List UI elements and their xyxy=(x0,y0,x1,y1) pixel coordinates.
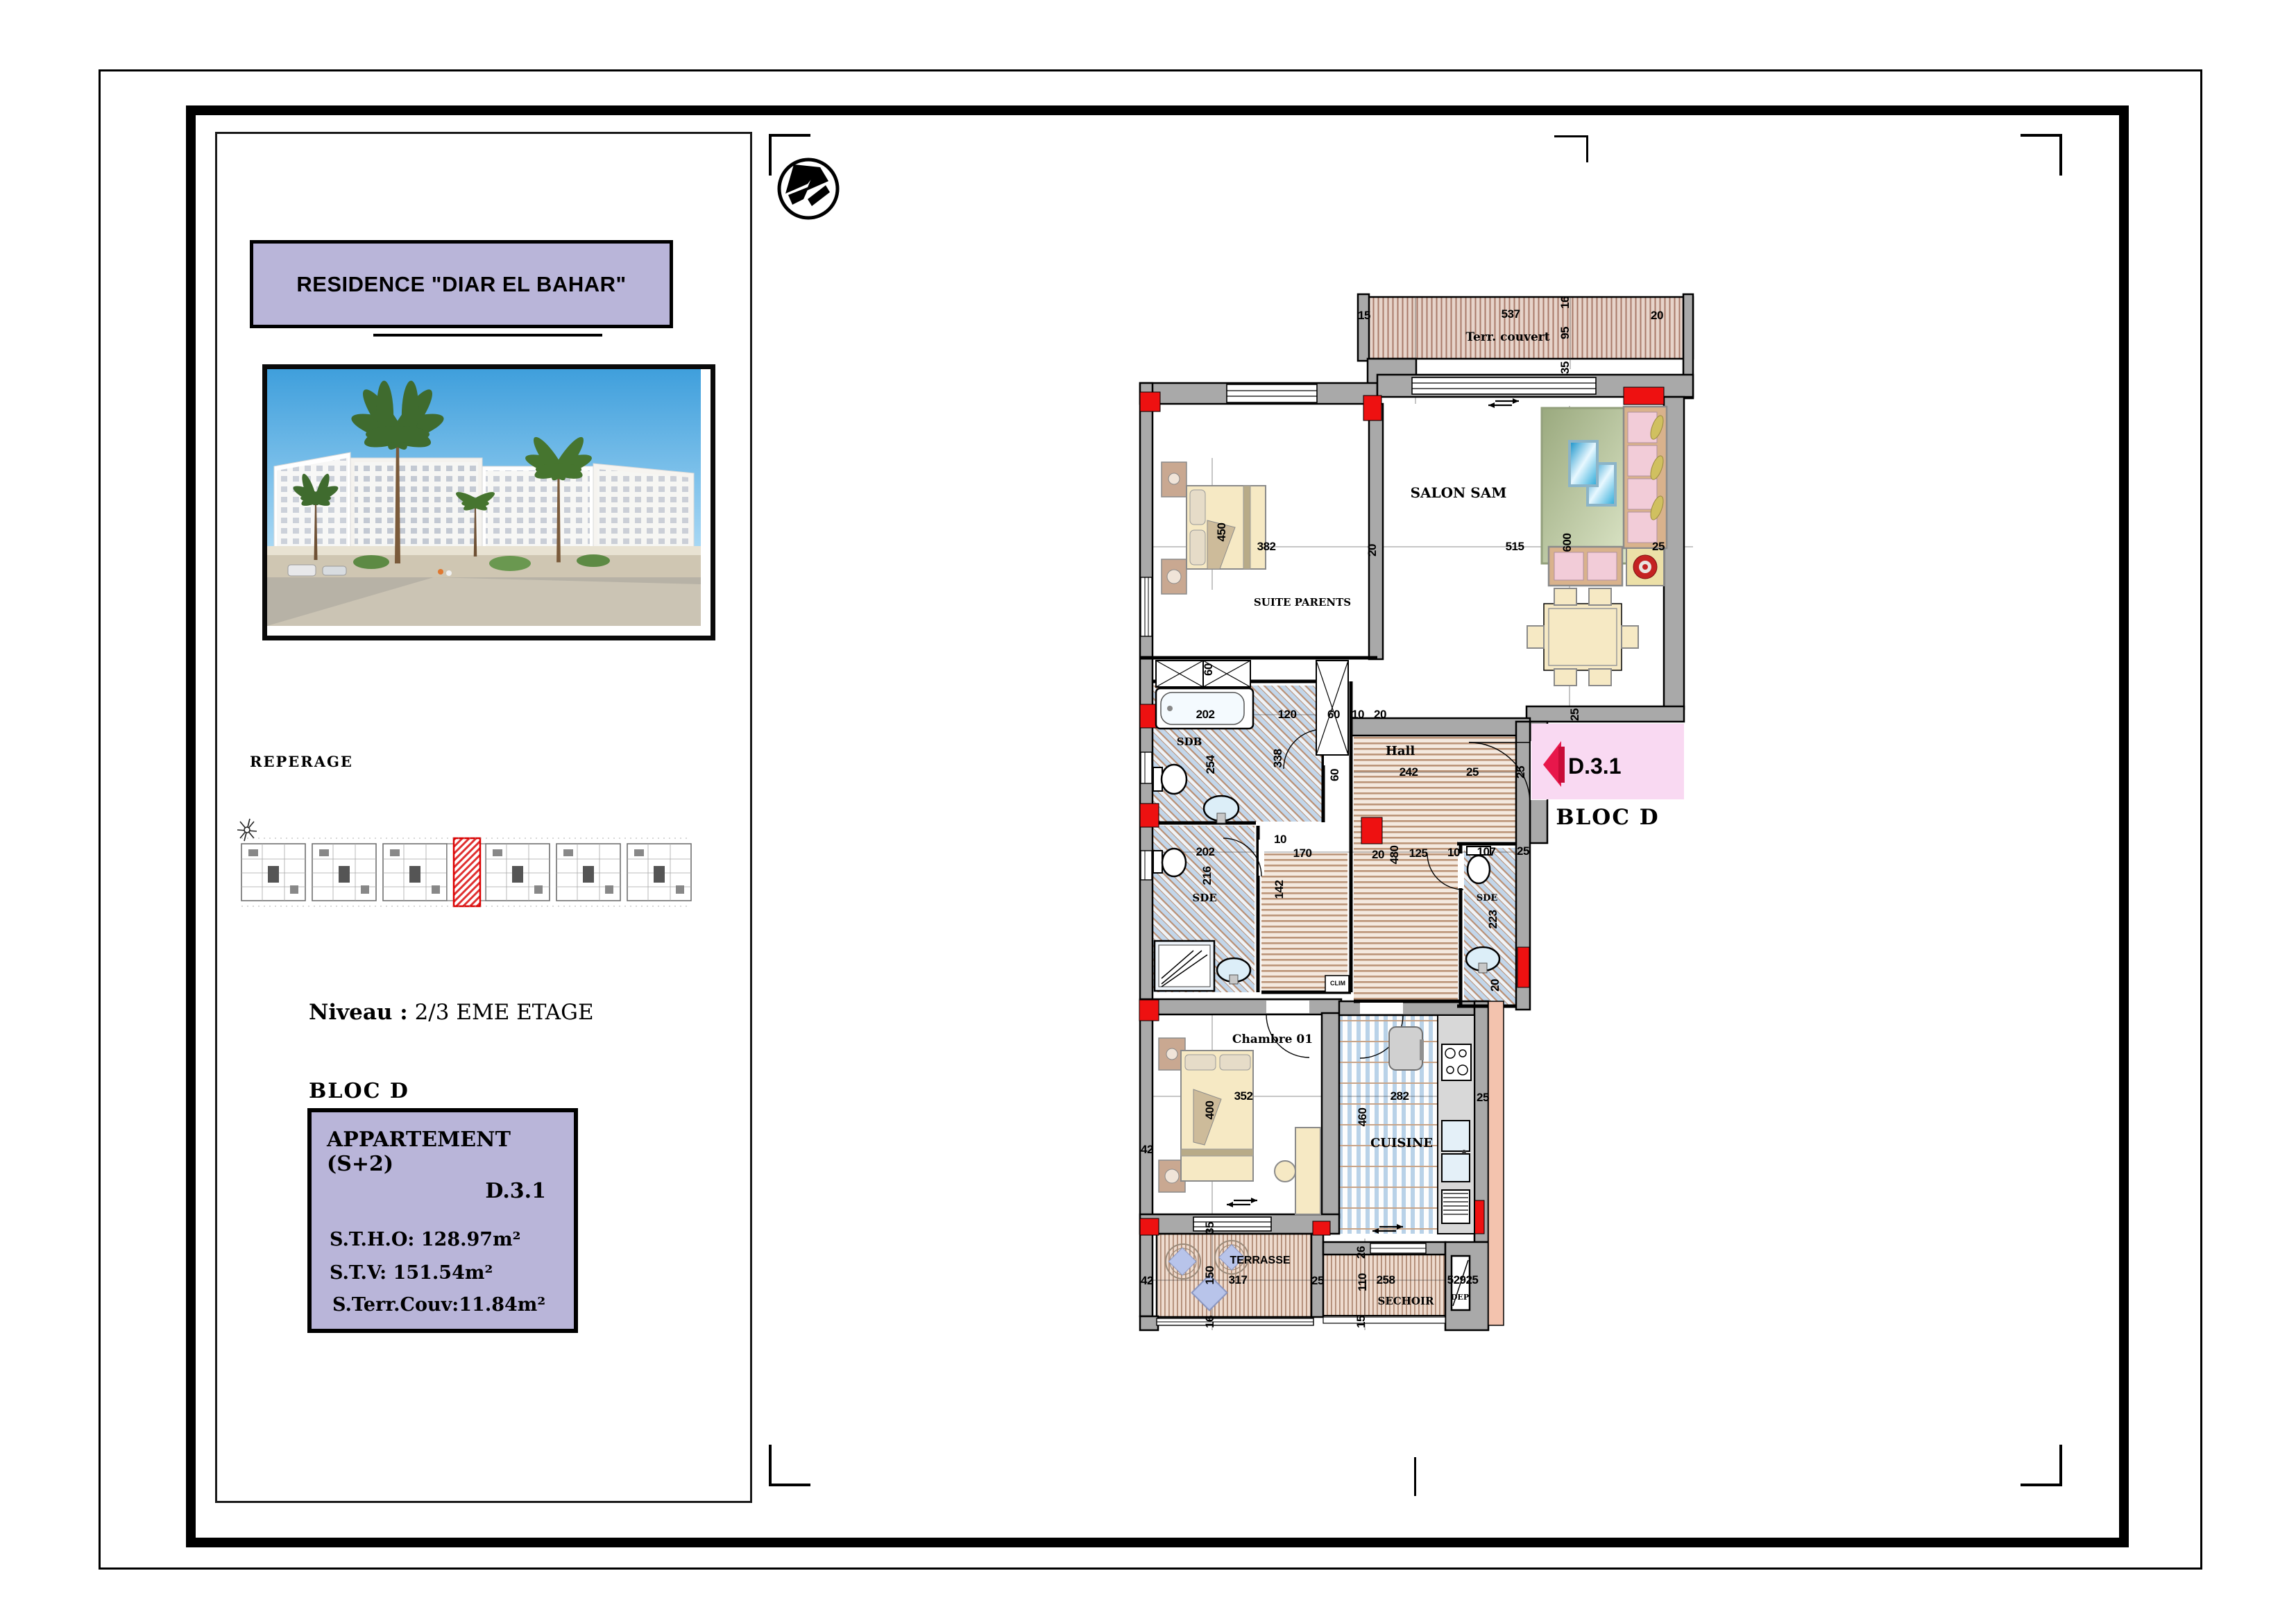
dimension-label: 10 xyxy=(1274,833,1286,846)
dimension-label: 282 xyxy=(1391,1089,1409,1103)
dimension-label: 150 xyxy=(1203,1266,1216,1285)
room-label: SECHOIR xyxy=(1378,1295,1434,1307)
dimension-label: 107 xyxy=(1477,845,1496,858)
dimension-label: 15 xyxy=(1358,309,1370,322)
window xyxy=(1370,1243,1426,1253)
dimension-label: 400 xyxy=(1203,1101,1216,1120)
chambre-furniture xyxy=(1159,1038,1320,1214)
residence-name: RESIDENCE "DIAR EL BAHAR" xyxy=(296,272,626,297)
site-location-plan xyxy=(235,817,720,925)
dimension-label: 125 xyxy=(1409,847,1428,860)
suite-parents-furniture xyxy=(1162,462,1266,594)
salon-furniture xyxy=(1527,407,1667,686)
room-label: SALON SAM xyxy=(1411,484,1507,501)
residence-name-box: RESIDENCE "DIAR EL BAHAR" xyxy=(250,240,673,328)
window xyxy=(1141,577,1152,636)
dimension-label: 95 xyxy=(1558,327,1572,339)
dimension-label: 223 xyxy=(1486,910,1499,929)
apartment-type: APPARTEMENT (S+2) xyxy=(327,1128,574,1176)
dimension-label: 16 xyxy=(1558,296,1572,309)
room-label: Hall xyxy=(1386,744,1415,758)
dimension-label: 25 xyxy=(1311,1274,1324,1287)
dimension-label: 25 xyxy=(1517,844,1529,858)
dimension-label: 42 xyxy=(1141,1274,1153,1287)
dimension-label: 20 xyxy=(1488,979,1502,992)
dimension-label: 25 xyxy=(1652,540,1665,553)
site-plan-drawing xyxy=(235,817,720,921)
dimension-label: 216 xyxy=(1200,867,1214,885)
dimension-label: 25 xyxy=(1514,766,1527,779)
dimension-label: 16 xyxy=(1203,1316,1216,1328)
dimension-label: 60 xyxy=(1328,769,1341,781)
dimension-label: 20 xyxy=(1372,848,1384,861)
dimension-label: 35 xyxy=(1558,362,1572,374)
dimension-label: 258 xyxy=(1377,1273,1395,1286)
niveau-line: Niveau : 2/3 EME ETAGE xyxy=(309,1000,594,1025)
dimension-label: 20 xyxy=(1374,708,1386,721)
room-label: SDB xyxy=(1177,736,1202,748)
company-underline xyxy=(373,334,602,337)
room-label: Chambre 01 xyxy=(1232,1033,1313,1046)
dimension-label: 537 xyxy=(1502,307,1520,321)
sliding-door-arrows xyxy=(1488,398,1519,408)
adjacent-unit-wall xyxy=(1488,1001,1504,1325)
room-label: TERRASSE xyxy=(1230,1255,1290,1266)
niveau-label: Niveau : xyxy=(309,1000,408,1025)
unit-tag-box: D.3.1 xyxy=(1531,724,1684,799)
window xyxy=(1141,851,1152,880)
residence-photo-image xyxy=(267,369,701,626)
title-panel: SOCIETE HOTEL PALACE RESIDENCE "DIAR EL … xyxy=(215,132,752,1503)
viewport-corner-mark xyxy=(769,1445,810,1486)
viewport-corner-mark xyxy=(2021,1445,2062,1486)
dimension-label: 460 xyxy=(1356,1108,1369,1127)
viewport-center-mark xyxy=(1414,1457,1416,1496)
dimension-label: 110 xyxy=(1356,1273,1369,1291)
dimension-label: 242 xyxy=(1400,765,1418,779)
building-strip xyxy=(241,838,691,906)
dimension-label: 25 xyxy=(1477,1091,1489,1104)
dimension-label: 254 xyxy=(1204,755,1217,774)
dimension-label: 42 xyxy=(1141,1143,1153,1156)
viewport-corner-mark xyxy=(2021,134,2062,176)
dimension-label: 10 xyxy=(1352,708,1364,721)
highlighted-unit xyxy=(454,838,480,906)
reperage-heading: REPERAGE xyxy=(250,753,353,770)
street xyxy=(267,554,701,626)
dimension-label: 60 xyxy=(1327,708,1340,721)
dimension-label: 202 xyxy=(1196,845,1215,858)
room-label: SDE xyxy=(1192,892,1216,904)
drawing-sheet: SOCIETE HOTEL PALACE RESIDENCE "DIAR EL … xyxy=(0,0,2296,1623)
room-label: Terr. couvert xyxy=(1465,330,1549,344)
logo-icon xyxy=(776,156,841,221)
unit-tag-label: D.3.1 xyxy=(1568,754,1621,779)
dimension-label: 317 xyxy=(1229,1273,1248,1286)
residence-photo xyxy=(262,364,715,640)
north-compass-icon xyxy=(237,819,257,841)
dimension-label: 515 xyxy=(1506,540,1524,553)
dimension-label: 35 xyxy=(1203,1222,1216,1234)
dimension-label: 202 xyxy=(1196,708,1215,721)
sliding-door-arrows xyxy=(1227,1198,1257,1207)
dimension-label: 120 xyxy=(1278,708,1297,721)
dimension-label: 338 xyxy=(1271,749,1284,768)
dimension-label: 10 xyxy=(1447,846,1460,859)
surface-tv: S.T.V: 151.54m² xyxy=(330,1262,493,1284)
room-label: CUISINE xyxy=(1370,1136,1433,1150)
room-label: SDE xyxy=(1477,893,1498,903)
dimension-label: 25 xyxy=(1466,765,1479,779)
corridor-floor xyxy=(1261,853,1347,992)
dimension-label: 600 xyxy=(1561,534,1574,552)
room-label: CLIM xyxy=(1330,980,1345,987)
terrace-covered-floor xyxy=(1362,297,1693,359)
surface-terr-couv: S.Terr.Couv:11.84m² xyxy=(332,1294,545,1316)
apartment-info-box: APPARTEMENT (S+2) D.3.1 S.T.H.O: 128.97m… xyxy=(307,1108,578,1333)
window xyxy=(1412,377,1596,394)
room-label: SUITE PARENTS xyxy=(1254,596,1351,609)
floor-plan: D.3.1 BLOC D Terr. couvertSALON SAMSUITE… xyxy=(1138,291,1735,1336)
apartment-code: D.3.1 xyxy=(485,1179,546,1203)
floor-plan-drawing: D.3.1 BLOC D Terr. couvertSALON SAMSUITE… xyxy=(1138,291,1735,1332)
bloc-heading: BLOC D xyxy=(309,1079,409,1103)
dimension-label: 352 xyxy=(1234,1089,1253,1103)
dimension-label: 480 xyxy=(1388,846,1401,865)
unit-arrow-stem xyxy=(1558,747,1565,783)
dimension-label: 450 xyxy=(1215,523,1228,542)
dimension-label: 20 xyxy=(1366,544,1379,556)
architect-logo xyxy=(776,156,841,225)
dimension-label: 26 xyxy=(1354,1246,1368,1259)
dimension-label: 142 xyxy=(1273,881,1286,899)
dimension-label: 25 xyxy=(1568,708,1581,721)
window xyxy=(1227,384,1317,402)
dimension-label: 382 xyxy=(1257,540,1276,553)
dimension-label: 15 xyxy=(1354,1316,1368,1328)
surface-tho: S.T.H.O: 128.97m² xyxy=(330,1229,520,1250)
plan-bloc-label: BLOC D xyxy=(1556,805,1659,830)
dimension-label: 20 xyxy=(1651,309,1663,322)
dimension-label: 170 xyxy=(1293,847,1312,860)
niveau-value: 2/3 EME ETAGE xyxy=(415,1000,594,1025)
viewport-center-mark xyxy=(1554,135,1588,162)
dimension-label: 60 xyxy=(1202,663,1215,676)
room-label: DEP xyxy=(1451,1293,1469,1302)
dimension-label: 52925 xyxy=(1447,1273,1479,1286)
window xyxy=(1141,752,1152,783)
